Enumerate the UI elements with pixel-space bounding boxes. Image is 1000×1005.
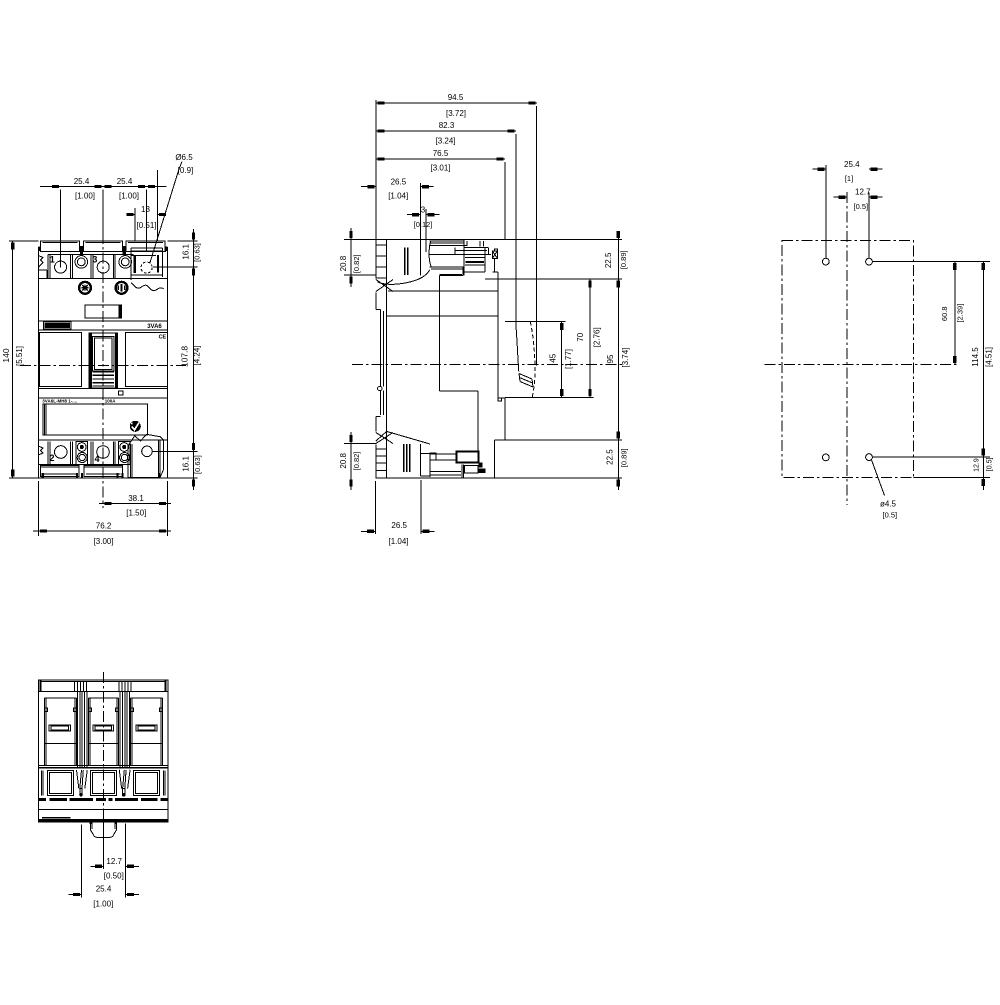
svg-text:Ø6.5: Ø6.5 bbox=[175, 153, 193, 162]
svg-text:100A: 100A bbox=[105, 399, 117, 404]
svg-text:94.5: 94.5 bbox=[448, 93, 464, 102]
svg-text:3VA6: 3VA6 bbox=[147, 324, 162, 330]
svg-text:[3.24]: [3.24] bbox=[435, 137, 455, 146]
svg-text:[0.89]: [0.89] bbox=[619, 250, 628, 269]
svg-text:26.5: 26.5 bbox=[391, 178, 407, 187]
svg-text:45: 45 bbox=[549, 353, 558, 362]
svg-text:2: 2 bbox=[49, 453, 54, 463]
svg-text:[1.04]: [1.04] bbox=[388, 537, 408, 546]
svg-text:[3.74]: [3.74] bbox=[621, 348, 630, 368]
svg-text:[0.5]: [0.5] bbox=[986, 458, 993, 472]
svg-text:12.7: 12.7 bbox=[106, 857, 122, 866]
svg-text:[0.5]: [0.5] bbox=[883, 511, 898, 520]
svg-text:[0.89]: [0.89] bbox=[620, 448, 629, 467]
svg-text:20.8: 20.8 bbox=[339, 452, 348, 468]
svg-text:[5.51]: [5.51] bbox=[15, 346, 24, 366]
svg-text:[1.00]: [1.00] bbox=[119, 192, 139, 201]
svg-text:140: 140 bbox=[1, 348, 11, 362]
svg-text:3: 3 bbox=[92, 255, 97, 265]
svg-text:22.5: 22.5 bbox=[606, 449, 615, 465]
svg-text:3VA6L-MH8 1-....: 3VA6L-MH8 1-.... bbox=[42, 399, 77, 404]
svg-text:ø4.5: ø4.5 bbox=[880, 500, 897, 509]
svg-text:114.5: 114.5 bbox=[971, 347, 980, 367]
svg-text:76.2: 76.2 bbox=[96, 522, 112, 531]
svg-text:60.8: 60.8 bbox=[940, 306, 949, 321]
svg-text:12.9: 12.9 bbox=[974, 458, 981, 472]
svg-text:[0.51]: [0.51] bbox=[136, 221, 156, 230]
svg-text:[1.04]: [1.04] bbox=[388, 192, 408, 201]
svg-text:70: 70 bbox=[576, 332, 585, 341]
svg-text:20.8: 20.8 bbox=[339, 255, 348, 271]
svg-text:[3.00]: [3.00] bbox=[94, 537, 114, 546]
svg-text:[3.01]: [3.01] bbox=[430, 164, 450, 173]
svg-text:4: 4 bbox=[94, 454, 99, 464]
svg-text:[1.00]: [1.00] bbox=[75, 192, 95, 201]
svg-text:3: 3 bbox=[421, 206, 426, 215]
svg-text:[1]: [1] bbox=[845, 174, 853, 183]
svg-text:1: 1 bbox=[50, 255, 55, 265]
svg-text:76.5: 76.5 bbox=[433, 149, 449, 158]
svg-text:[1.00]: [1.00] bbox=[93, 900, 113, 909]
svg-text:25.4: 25.4 bbox=[844, 160, 860, 169]
svg-text:[1.50]: [1.50] bbox=[126, 509, 146, 518]
svg-text:[4.24]: [4.24] bbox=[193, 345, 202, 365]
svg-text:82.3: 82.3 bbox=[439, 121, 455, 130]
svg-text:[1.77]: [1.77] bbox=[564, 349, 573, 369]
svg-text:[0.82]: [0.82] bbox=[352, 254, 361, 273]
svg-text:16.1: 16.1 bbox=[181, 243, 190, 259]
svg-text:[0.63]: [0.63] bbox=[193, 455, 202, 474]
svg-text:107.8: 107.8 bbox=[179, 346, 189, 368]
svg-text:[3.72]: [3.72] bbox=[446, 109, 466, 118]
svg-text:26.5: 26.5 bbox=[391, 521, 407, 530]
svg-text:[0.50]: [0.50] bbox=[104, 872, 124, 881]
svg-text:CE: CE bbox=[159, 335, 167, 341]
svg-text:25.4: 25.4 bbox=[117, 177, 133, 186]
svg-text:[2.76]: [2.76] bbox=[593, 327, 602, 347]
svg-text:16.1: 16.1 bbox=[181, 456, 190, 472]
svg-text:[2.39]: [2.39] bbox=[955, 304, 964, 323]
svg-text:[0.5]: [0.5] bbox=[854, 202, 869, 211]
svg-text:25.4: 25.4 bbox=[96, 885, 112, 894]
svg-text:22.5: 22.5 bbox=[604, 252, 613, 268]
svg-text:[0.63]: [0.63] bbox=[193, 243, 202, 262]
svg-text:95: 95 bbox=[606, 354, 615, 363]
svg-text:[0.12]: [0.12] bbox=[414, 220, 433, 229]
svg-text:38.1: 38.1 bbox=[128, 494, 144, 503]
svg-text:13: 13 bbox=[141, 205, 150, 214]
svg-text:25.4: 25.4 bbox=[74, 177, 90, 186]
svg-text:12.7: 12.7 bbox=[855, 188, 871, 197]
svg-text:[4.51]: [4.51] bbox=[984, 347, 993, 367]
svg-text:[0.82]: [0.82] bbox=[352, 452, 361, 471]
